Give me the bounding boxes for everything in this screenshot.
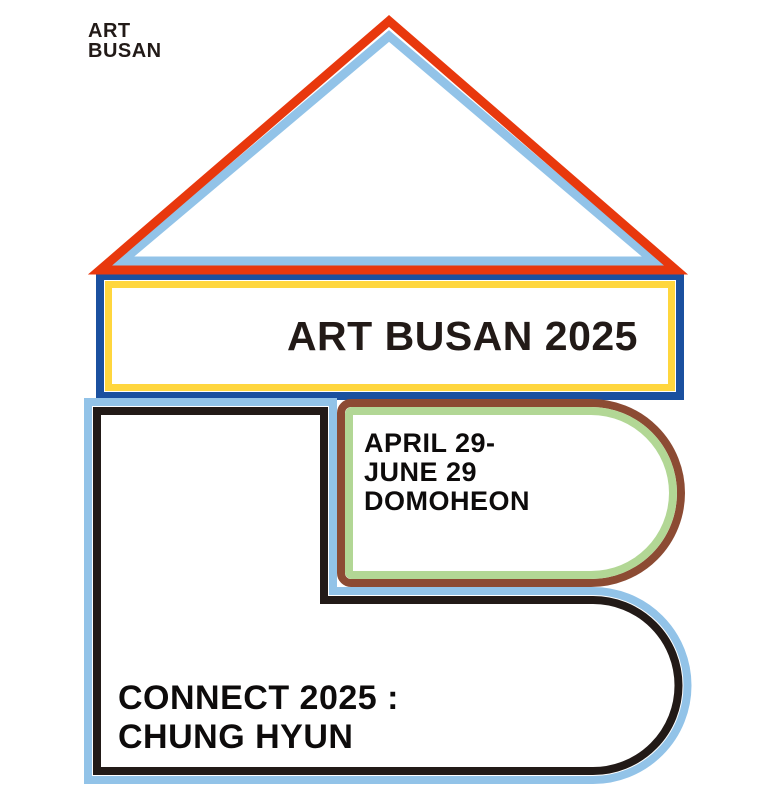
event-dates-line-1: APRIL 29- [364,429,669,458]
roof-triangle-inner [122,36,654,261]
logo-line-1: ART [88,21,162,41]
event-capsule: APRIL 29- JUNE 29 DOMOHEON [337,399,685,587]
event-dates-line-2: JUNE 29 [364,458,669,487]
banner-frame: ART BUSAN 2025 [96,272,684,400]
event-capsule-inner: APRIL 29- JUNE 29 DOMOHEON [345,407,677,579]
exhibition-title-line-2: CHUNG HYUN [118,718,399,757]
banner-frame-inner: ART BUSAN 2025 [105,281,675,391]
art-busan-logo: ART BUSAN [88,21,162,61]
art-busan-poster: ART BUSAN ART BUSAN 2025 APRIL 29- JUNE … [0,0,780,800]
logo-line-2: BUSAN [88,41,162,61]
roof-triangle-outer [100,21,676,270]
banner-title: ART BUSAN 2025 [287,313,638,360]
event-venue: DOMOHEON [364,487,669,516]
exhibition-title: CONNECT 2025 : CHUNG HYUN [118,679,399,757]
exhibition-title-line-1: CONNECT 2025 : [118,679,399,718]
